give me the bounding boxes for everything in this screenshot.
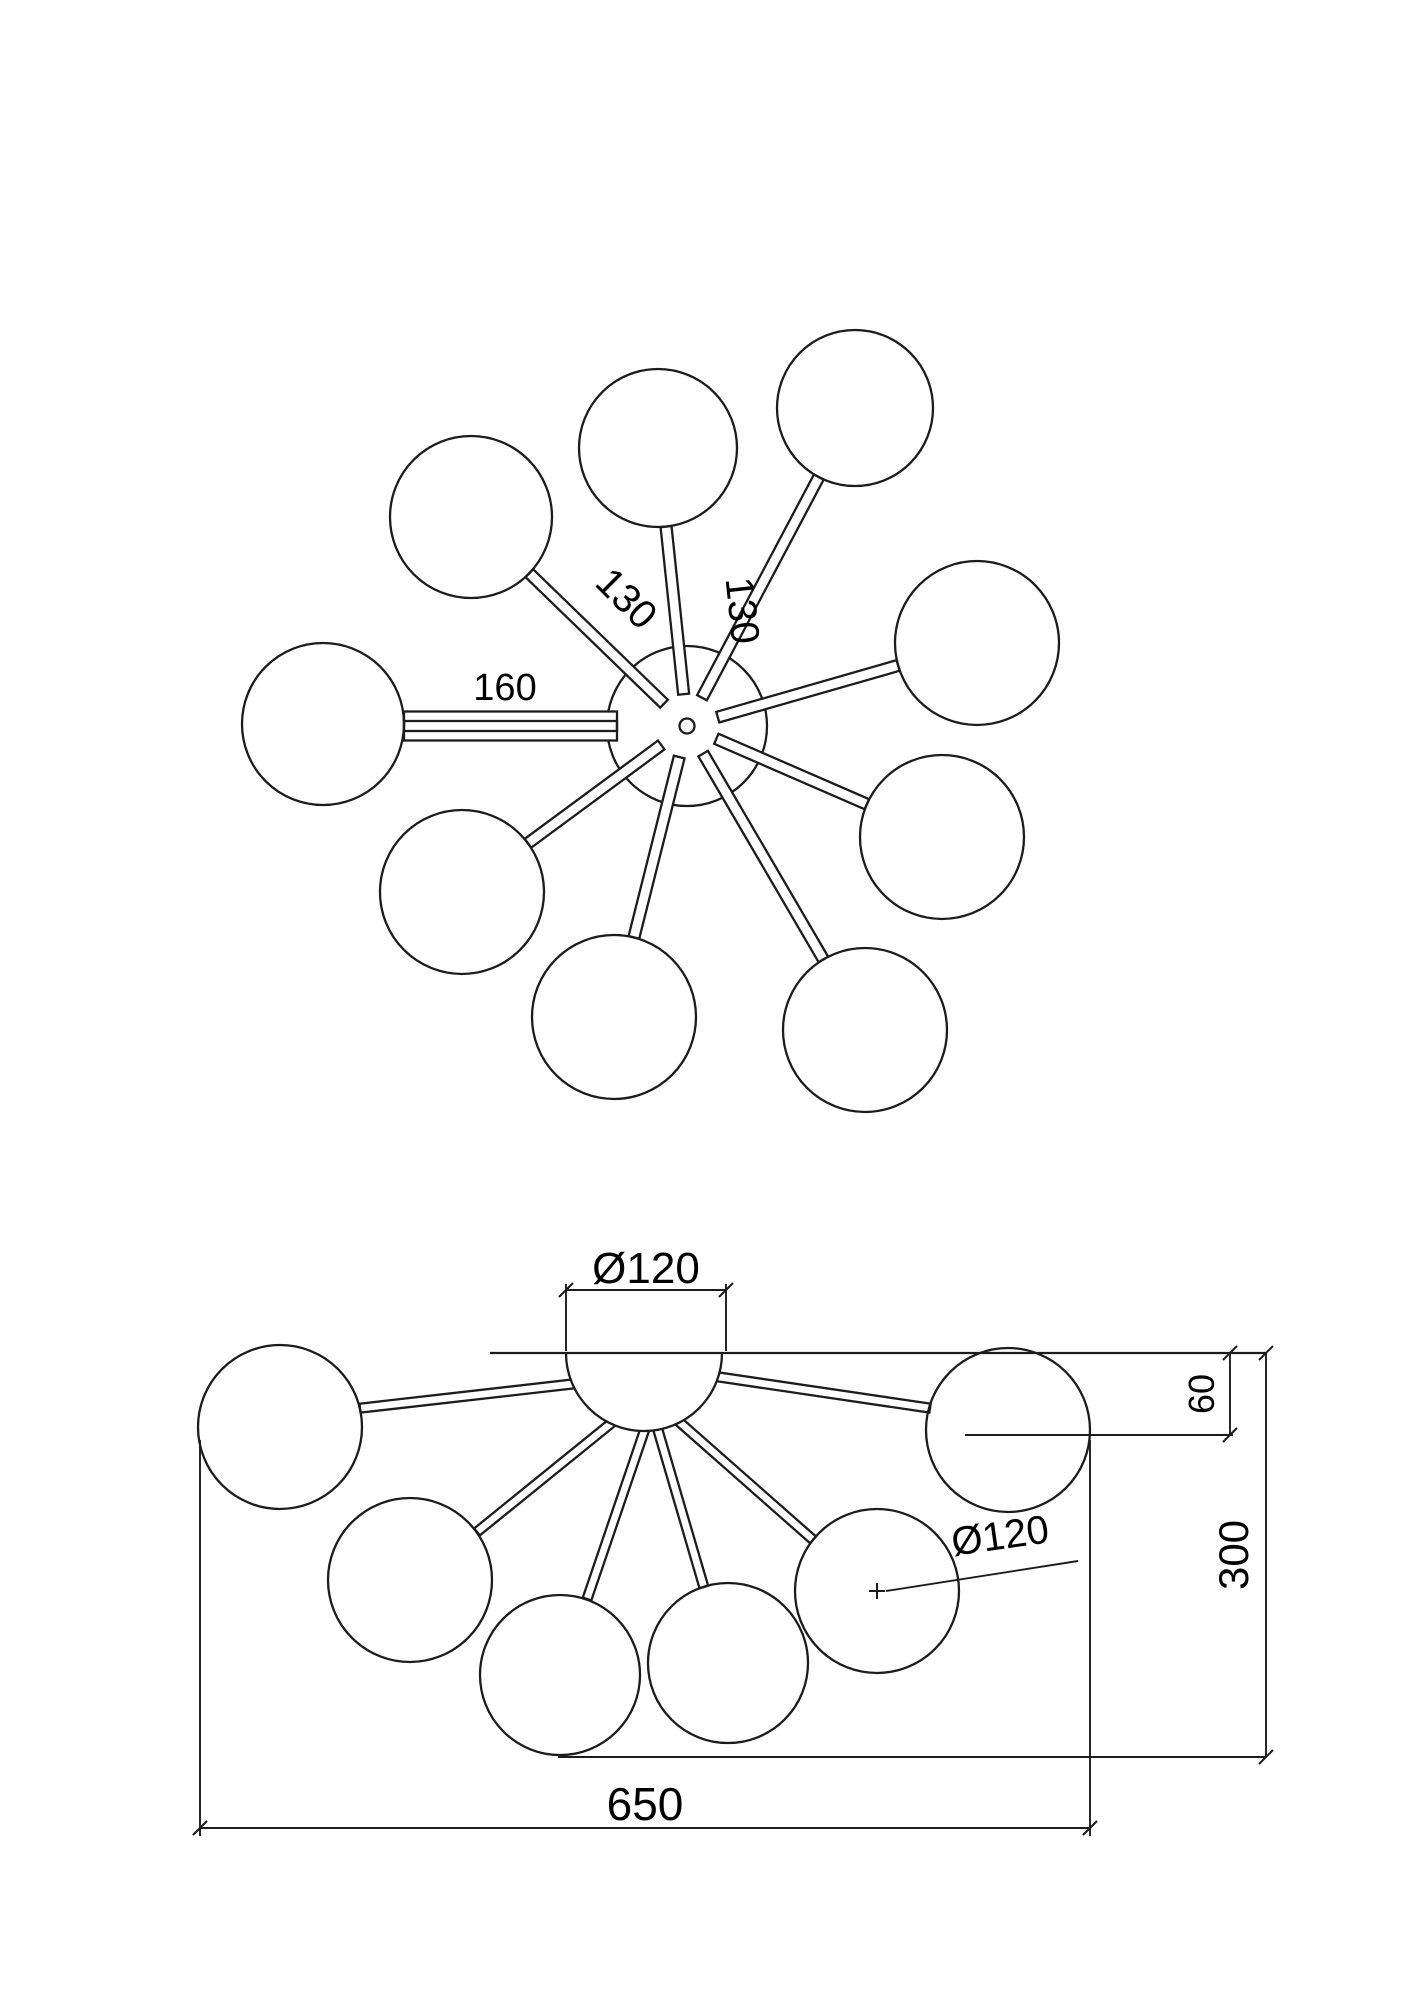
drawing-canvas: 160 130 130 (0, 0, 1413, 2000)
arm-west (404, 712, 617, 741)
background (0, 0, 1413, 2000)
technical-drawing-page: 160 130 130 (0, 0, 1413, 2000)
dim-label-arm-n: 130 (717, 575, 768, 646)
dim-label-canopy-drop: 60 (1181, 1374, 1222, 1414)
dim-label-overall-width: 650 (607, 1778, 684, 1830)
dim-label-overall-height: 300 (1210, 1520, 1257, 1590)
dim-label-canopy-diameter: Ø120 (592, 1244, 700, 1293)
dim-label-arm-w: 160 (473, 667, 536, 709)
